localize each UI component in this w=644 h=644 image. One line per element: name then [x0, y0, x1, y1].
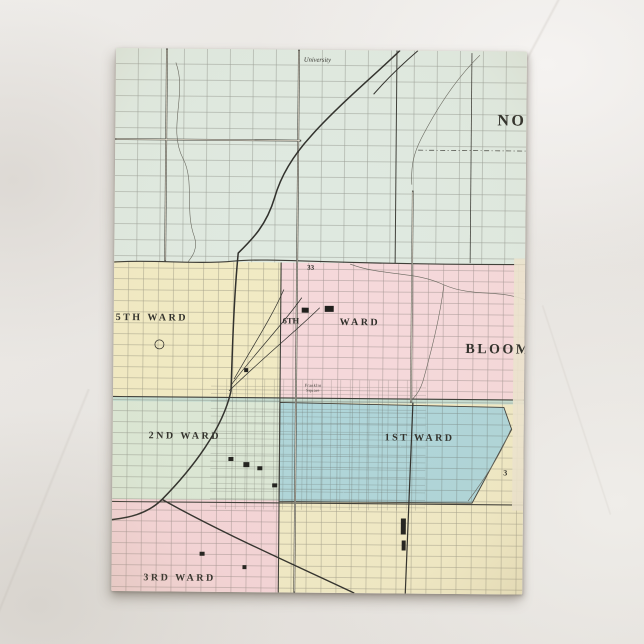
marble-vein: [541, 305, 612, 515]
vintage-bloomington-map: University NO 33 5TH WARD 6TH WARD BLOOM…: [111, 48, 527, 595]
marble-vein: [0, 388, 91, 621]
postcard[interactable]: University NO 33 5TH WARD 6TH WARD BLOOM…: [111, 48, 527, 595]
marble-background: University NO 33 5TH WARD 6TH WARD BLOOM…: [0, 0, 644, 644]
paper-vignette: [111, 48, 527, 595]
